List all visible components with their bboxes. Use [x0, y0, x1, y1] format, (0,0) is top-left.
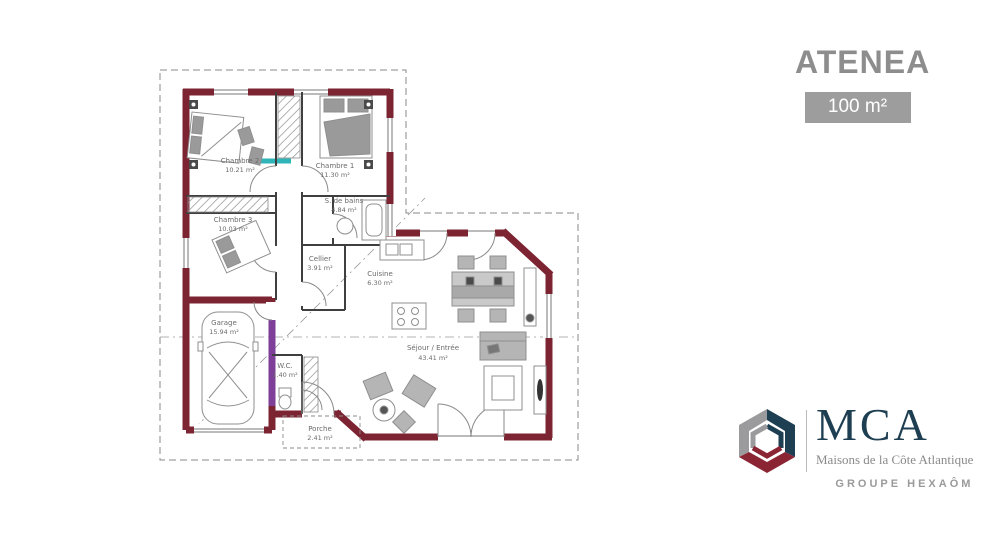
room-label-chambre2: Chambre 2: [221, 157, 260, 165]
page: Chambre 2 10.21 m² Chambre 1 11.30 m² S.…: [0, 0, 1000, 554]
room-label-chambre1: Chambre 1: [316, 162, 355, 170]
room-area-cellier: 3.91 m²: [307, 264, 333, 272]
furniture: [187, 96, 546, 433]
logo-cube-icon: [737, 408, 797, 474]
brand-text: MCA Maisons de la Côte Atlantique GROUPE…: [816, 402, 973, 490]
brand-name: MCA: [816, 402, 973, 448]
room-area-sdb: 4.84 m²: [331, 206, 357, 214]
room-area-sejour: 43.41 m²: [418, 354, 448, 362]
room-area-chambre2: 10.21 m²: [225, 166, 255, 174]
room-label-sejour: Séjour / Entrée: [407, 344, 459, 352]
room-area-cuisine: 6.30 m²: [367, 279, 393, 287]
room-label-cellier: Cellier: [309, 255, 331, 263]
header: ATENEA 100 m²: [795, 44, 920, 123]
page-title: ATENEA: [795, 44, 920, 81]
room-area-garage: 15.94 m²: [209, 328, 239, 336]
room-label-chambre3: Chambre 3: [214, 216, 253, 224]
room-area-porche: 2.41 m²: [307, 434, 333, 442]
brand-block: MCA Maisons de la Côte Atlantique GROUPE…: [737, 402, 973, 490]
room-label-sdb: S. de bains: [325, 197, 364, 205]
room-label-wc: W.C.: [277, 362, 292, 370]
area-badge: 100 m²: [805, 92, 911, 123]
brand-tagline: Maisons de la Côte Atlantique: [816, 452, 973, 468]
room-area-chambre1: 11.30 m²: [320, 171, 350, 179]
room-label-cuisine: Cuisine: [367, 270, 393, 278]
room-label-porche: Porche: [308, 425, 332, 433]
brand-divider: [806, 410, 807, 472]
room-area-wc: 1.40 m²: [272, 371, 298, 379]
room-area-chambre3: 10.03 m²: [218, 225, 248, 233]
brand-group: GROUPE HEXAÔM: [816, 478, 973, 490]
room-label-garage: Garage: [211, 319, 237, 327]
